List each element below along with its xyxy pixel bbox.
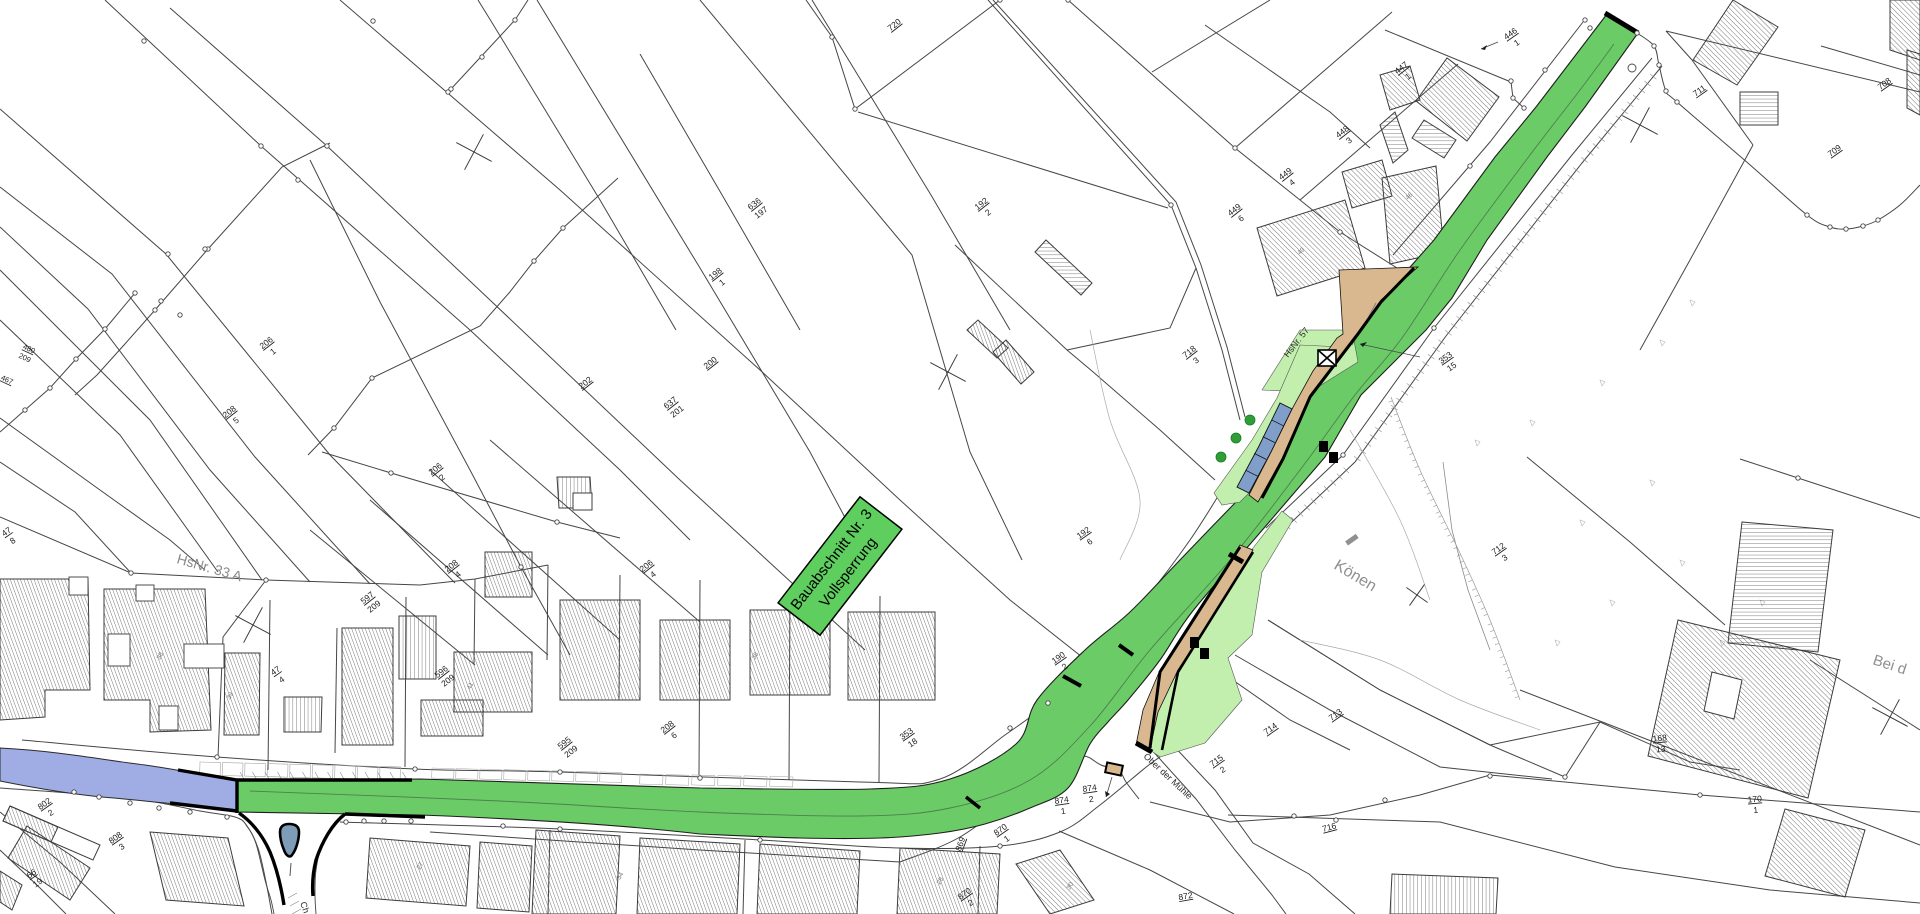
svg-text:874: 874 (1082, 782, 1098, 794)
svg-text:170: 170 (1747, 793, 1762, 804)
svg-text:168: 168 (1652, 732, 1667, 743)
svg-text:874: 874 (1054, 794, 1070, 806)
svg-text:13: 13 (1656, 744, 1667, 755)
